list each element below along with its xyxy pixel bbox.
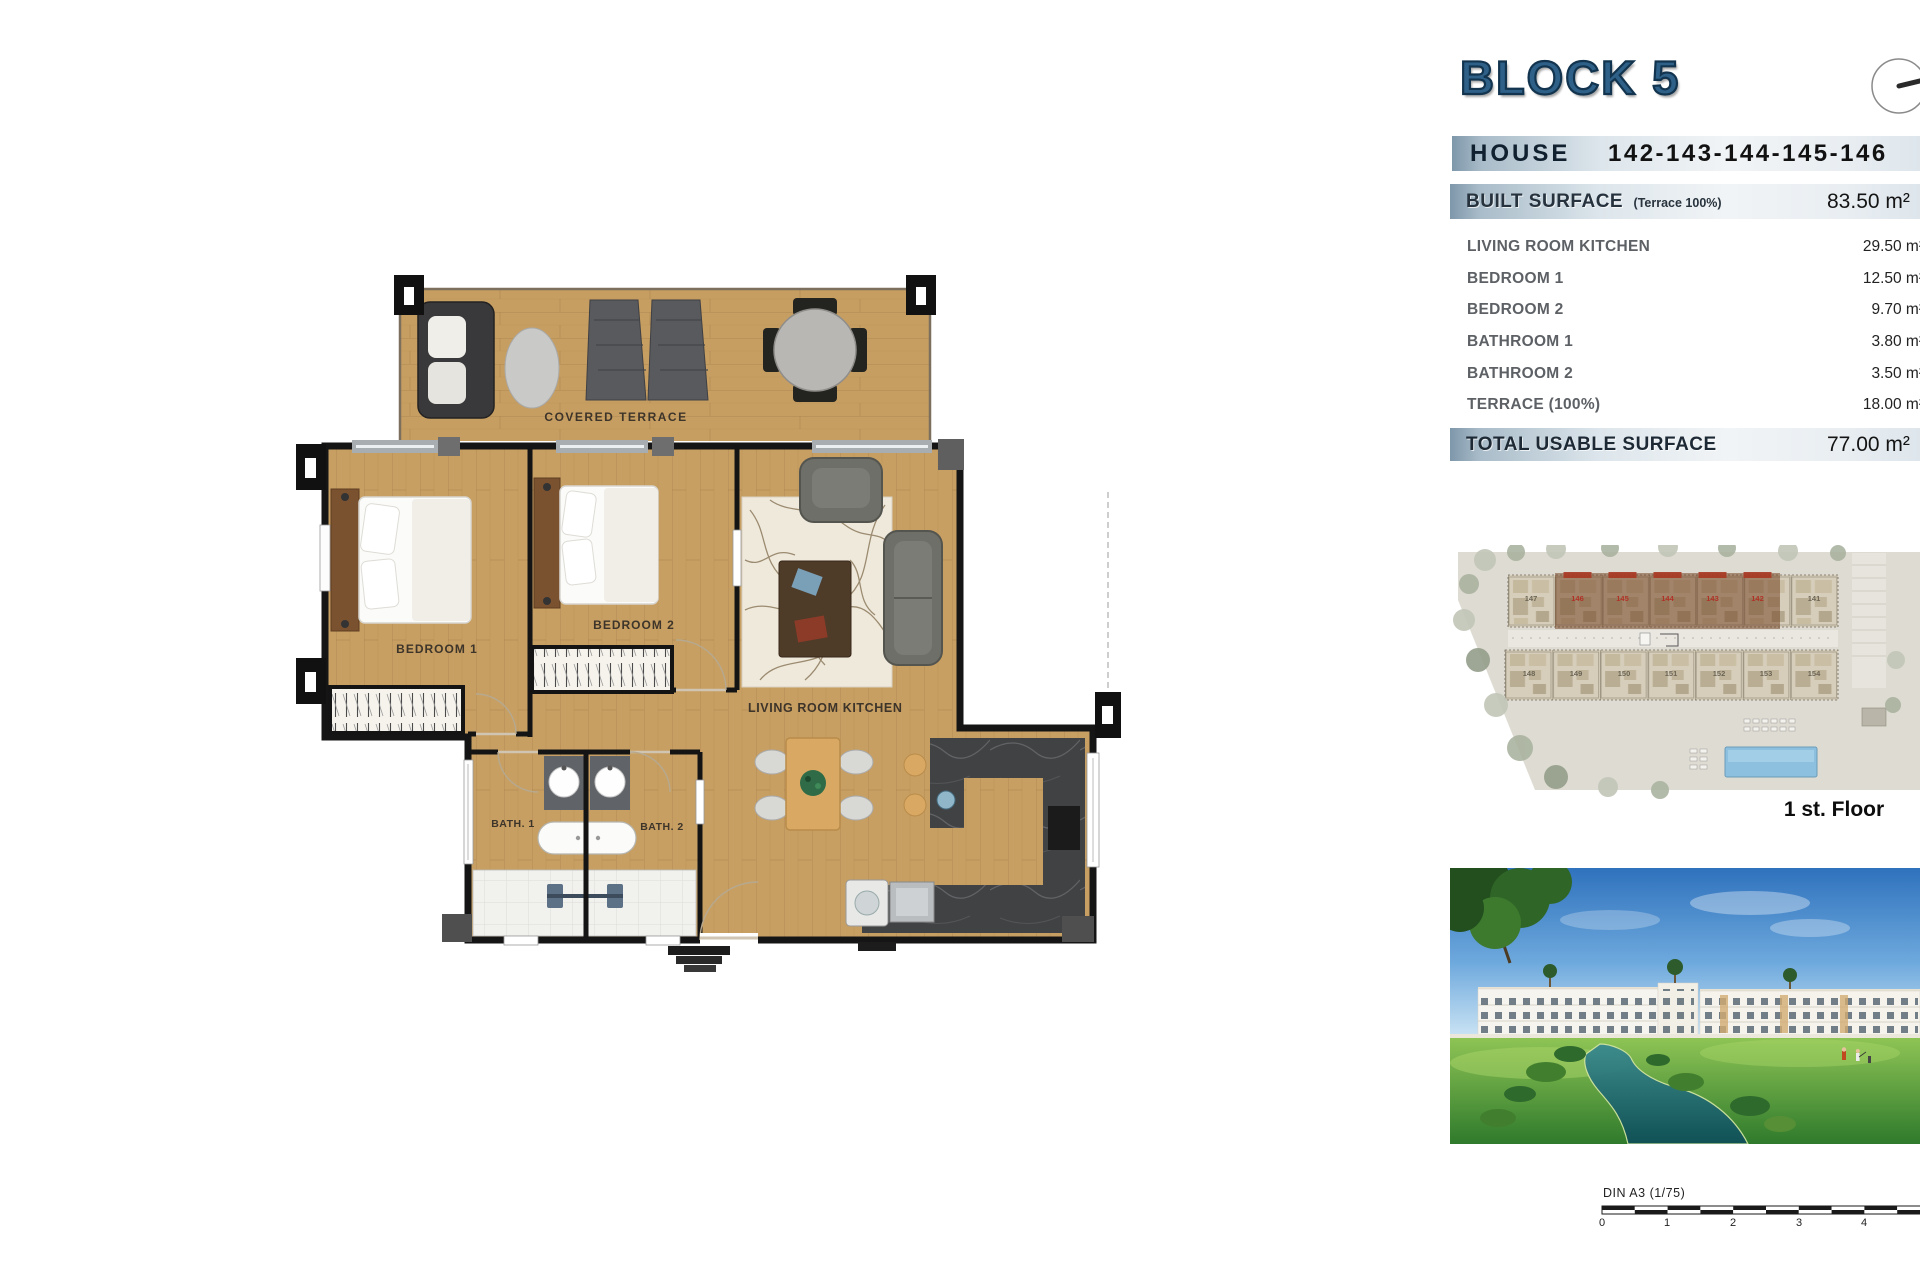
house-numbers: 142-143-144-145-146 [1608,136,1888,171]
row-value: 3.80 m² [1871,326,1920,358]
terrace-label: COVERED TERRACE [544,410,687,424]
bedroom1-furniture [331,489,471,631]
svg-text:149: 149 [1570,669,1583,678]
terrace-side-table [505,328,559,408]
row-label: LIVING ROOM KITCHEN [1467,238,1650,255]
scale-tick: 4 [1854,1217,1874,1229]
table-row: TERRACE (100%) 18.00 m² [1467,389,1920,421]
scale-label: DIN A3 (1/75) [1603,1186,1685,1200]
scale-bar [1600,1204,1920,1218]
scale-bar-cells [1602,1206,1920,1214]
built-surface-label: BUILT SURFACE [1466,191,1623,212]
row-label: BATHROOM 1 [1467,333,1573,350]
floor-caption: 1 st. Floor [1784,798,1884,821]
row-label: TERRACE (100%) [1467,396,1600,413]
svg-text:141: 141 [1808,594,1821,603]
row-value: 12.50 m² [1863,263,1920,295]
row-value: 18.00 m² [1863,389,1920,421]
svg-text:153: 153 [1760,669,1773,678]
total-surface-bar: TOTAL USABLE SURFACE 77.00 m² [1450,428,1920,461]
svg-text:147: 147 [1525,594,1538,603]
table-row: BEDROOM 2 9.70 m² [1467,294,1920,326]
svg-text:151: 151 [1665,669,1678,678]
bath2-label: BATH. 2 [640,821,684,833]
floor-plan: COVERED TERRACE [270,230,1150,1000]
covered-terrace: COVERED TERRACE [394,275,936,441]
scale-tick: 3 [1789,1217,1809,1229]
surface-table: LIVING ROOM KITCHEN 29.50 m² BEDROOM 1 1… [1467,231,1920,421]
bedroom1-label: BEDROOM 1 [396,642,478,656]
svg-text:143: 143 [1706,594,1719,603]
scale-tick: 1 [1657,1217,1677,1229]
house-header-bar: HOUSE 142-143-144-145-146 [1452,136,1920,171]
svg-text:144: 144 [1661,594,1674,603]
page-title: BLOCK 5 [1460,50,1680,105]
north-compass [1866,52,1920,122]
house-label: HOUSE [1470,140,1570,167]
terrace-sofa [418,302,494,418]
svg-text:152: 152 [1713,669,1726,678]
table-row: BEDROOM 1 12.50 m² [1467,263,1920,295]
row-label: BEDROOM 1 [1467,270,1564,287]
svg-text:154: 154 [1808,669,1821,678]
total-label: TOTAL USABLE SURFACE [1466,434,1717,455]
living-label: LIVING ROOM KITCHEN [748,701,902,715]
bedroom2-furniture [534,478,658,608]
bedroom2-label: BEDROOM 2 [593,618,675,632]
scale-tick: 2 [1723,1217,1743,1229]
row-label: BATHROOM 2 [1467,365,1573,382]
site-plan: 147 146 145 144 143 142 141 148 149 150 … [1450,545,1920,825]
plan-sheet: COVERED TERRACE [0,0,1920,1280]
svg-text:150: 150 [1618,669,1631,678]
compass-circle [1872,59,1920,113]
row-value: 3.50 m² [1871,358,1920,390]
table-row: BATHROOM 1 3.80 m² [1467,326,1920,358]
svg-text:148: 148 [1523,669,1536,678]
development-photo [1450,868,1920,1144]
svg-text:146: 146 [1571,594,1584,603]
row-value: 29.50 m² [1863,231,1920,263]
scale-tick: 0 [1592,1217,1612,1229]
built-surface-sub: (Terrace 100%) [1634,196,1722,210]
table-row: BATHROOM 2 3.50 m² [1467,358,1920,390]
built-surface-bar: BUILT SURFACE (Terrace 100%) 83.50 m² [1450,184,1920,219]
built-surface-value: 83.50 m² [1827,184,1910,219]
svg-text:142: 142 [1751,594,1764,603]
row-label: BEDROOM 2 [1467,301,1564,318]
total-value: 77.00 m² [1827,428,1910,461]
row-value: 9.70 m² [1871,294,1920,326]
table-row: LIVING ROOM KITCHEN 29.50 m² [1467,231,1920,263]
bath1-label: BATH. 1 [491,818,535,830]
svg-text:145: 145 [1616,594,1629,603]
